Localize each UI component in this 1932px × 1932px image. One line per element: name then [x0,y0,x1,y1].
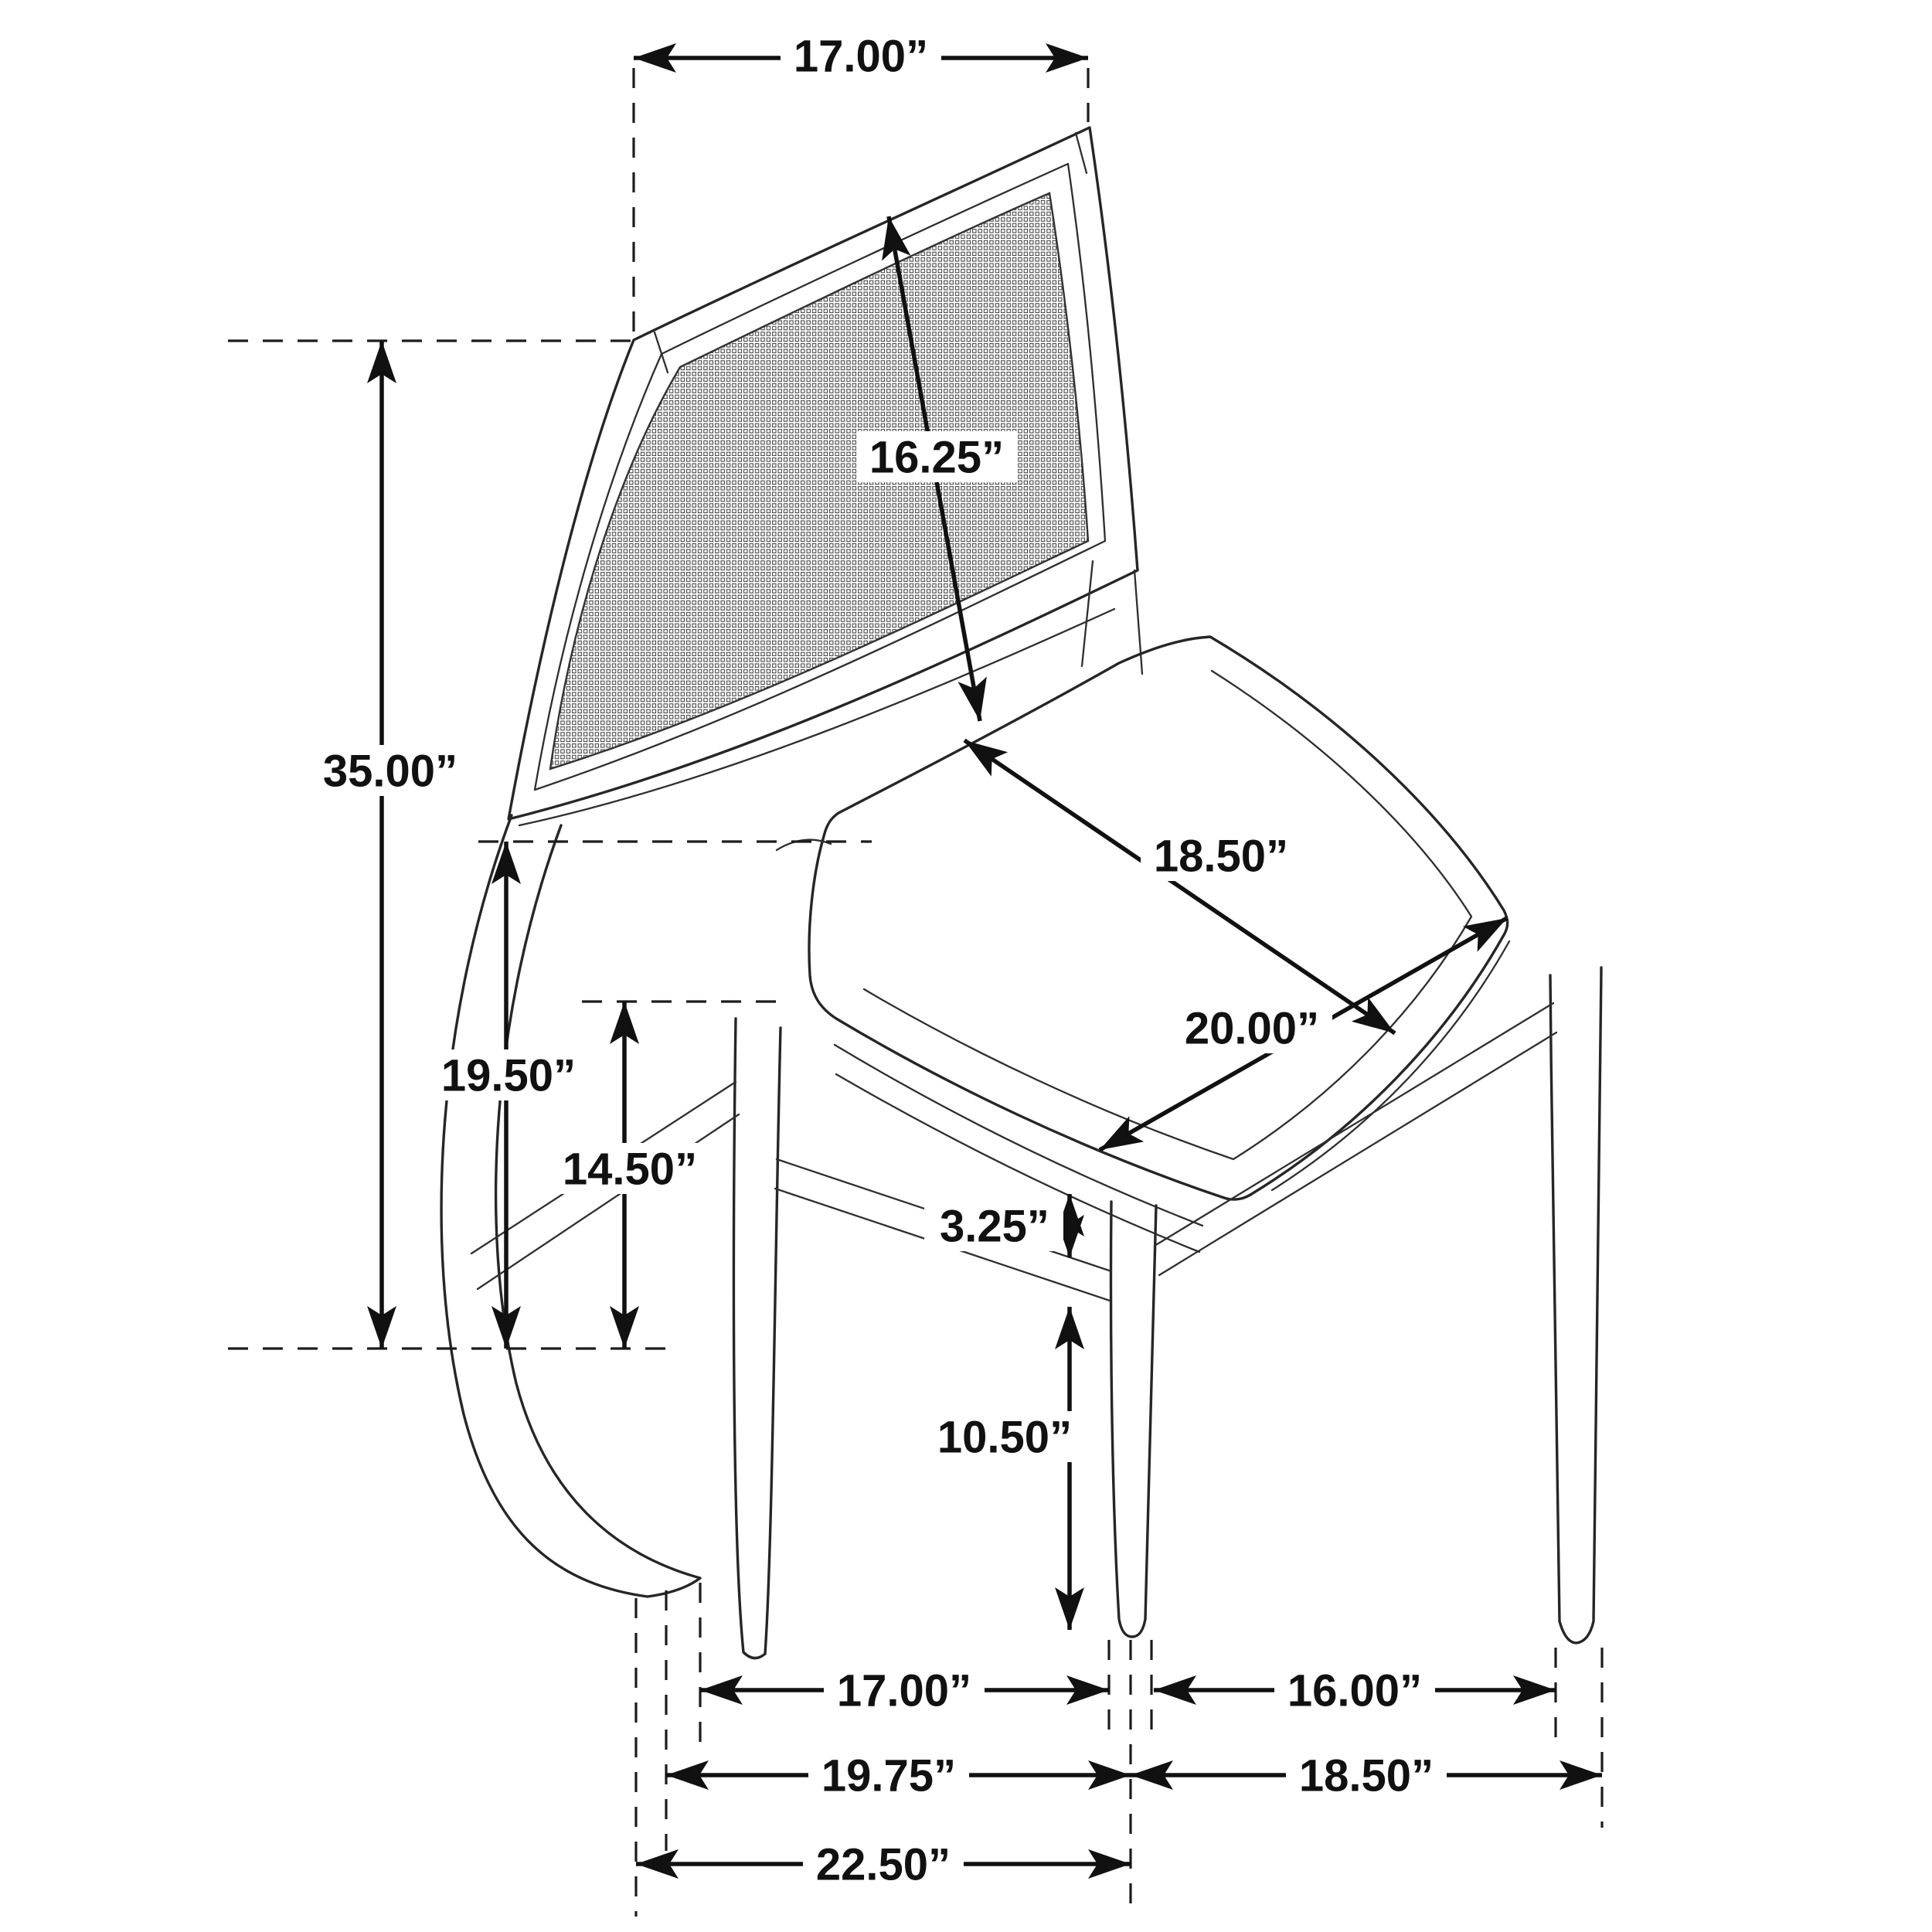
dim-seat-width-label: 20.00” [1185,1003,1319,1053]
seat-piping [864,671,1471,1159]
leg-back-left [441,815,700,1597]
dim-back-top-width: 17.00” [634,31,1088,82]
dim-stretcher-top-height-label: 14.50” [563,1144,697,1194]
dim-side-depth: 19.75” [666,1750,1131,1801]
leg-front-near [1111,1202,1156,1637]
dim-overall-depth: 22.50” [636,1838,1131,1889]
dim-seat-back-height: 19.50” [428,842,589,1349]
dim-base-width: 18.50” [1131,1750,1602,1801]
dim-back-top-width-label: 17.00” [794,31,928,81]
dim-overall-height: 35.00” [310,341,471,1349]
leg-back-right [1550,968,1601,1643]
chair-dimension-diagram: 17.00” 16.25” 35.00” 19.50” 14.50” 18.50… [0,0,1932,1932]
dim-front-to-back-leg-spacing: 16.00” [1154,1665,1556,1716]
dim-seat-depth-label: 18.50” [1154,831,1288,881]
dim-seat-back-height-label: 19.50” [441,1050,576,1100]
dim-side-leg-spacing-label: 17.00” [837,1665,971,1716]
dim-overall-depth-label: 22.50” [816,1839,951,1889]
dim-back-panel-diagonal-label: 16.25” [869,432,1004,482]
dim-base-width-label: 18.50” [1299,1750,1434,1801]
dim-apron-stretcher-gap: 3.25” [924,1194,1070,1257]
dim-side-leg-spacing: 17.00” [700,1665,1109,1716]
dim-front-to-back-leg-spacing-label: 16.00” [1287,1665,1422,1716]
dim-lower-leg-height: 10.50” [924,1307,1085,1630]
dim-seat-depth: 18.50” [964,740,1395,1033]
leg-front-left [733,1019,781,1658]
backrest-corner-seam-right [1076,133,1087,173]
dim-side-depth-label: 19.75” [821,1750,956,1801]
dim-apron-stretcher-gap-label: 3.25” [940,1201,1049,1251]
dim-lower-leg-height-label: 10.50” [937,1412,1072,1462]
dim-overall-height-label: 35.00” [323,746,457,796]
